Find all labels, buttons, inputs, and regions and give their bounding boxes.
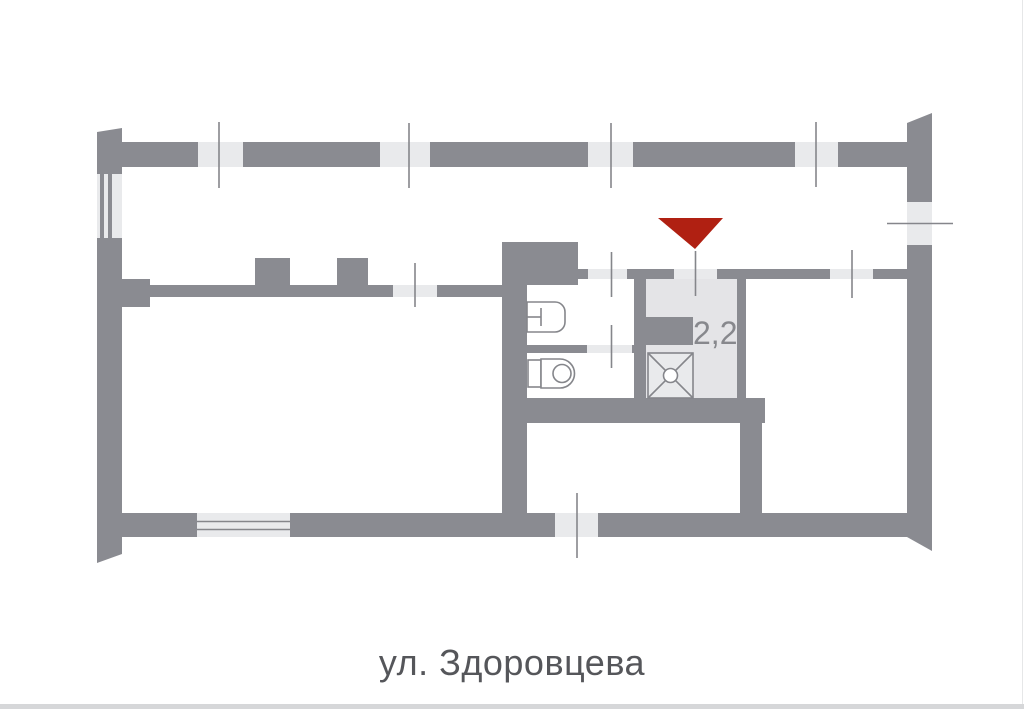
shower-icon [648,353,693,398]
wall-block [502,242,578,285]
wall-hall-right [740,423,762,515]
page-edge-bottom [0,704,1024,709]
floor-plan-canvas: 2,2 [0,0,1024,709]
wall-interior-left [150,285,502,297]
sink-icon [527,302,565,332]
toilet-cistern [528,360,541,387]
axis-lines [219,122,953,558]
toilet-icon [528,359,575,388]
interior-walls [122,242,907,515]
door-opening [588,269,627,279]
wall-right [907,113,932,551]
wall-below-bath [502,398,765,423]
duct-block [646,317,693,345]
shower-drain [664,369,678,383]
toilet-seat [553,365,571,383]
window-opening [380,142,430,167]
triangle-down-marker [658,218,723,249]
pilaster [255,258,290,297]
pilaster [337,258,368,297]
room-area-label: 2,2 [693,315,737,351]
floor-plan-page: 2,2 ул. Здоровцева [0,0,1024,709]
window-opening [197,513,290,537]
page-edge-right [1022,0,1023,709]
window-opening [198,142,243,167]
wall-room-divider-right [737,269,746,410]
window-mullion [100,174,104,238]
wall-stub [122,279,150,307]
street-caption: ул. Здоровцева [0,642,1024,684]
door-opening [587,345,632,353]
wall-room-divider-left [634,269,646,410]
window-mullion [108,174,112,238]
